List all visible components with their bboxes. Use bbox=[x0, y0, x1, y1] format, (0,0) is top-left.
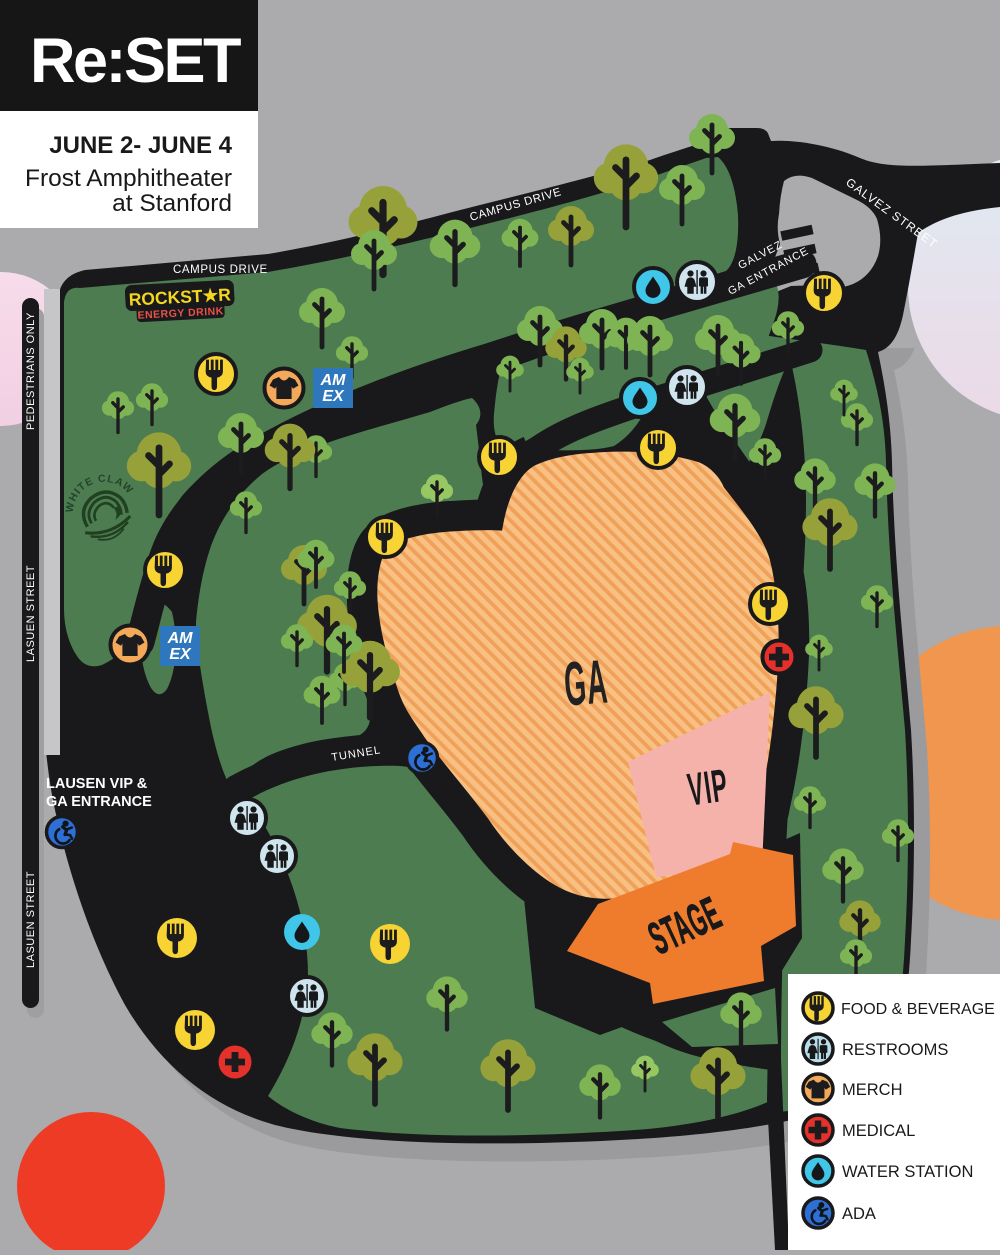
svg-text:AM: AM bbox=[320, 372, 347, 389]
svg-text:CAMPUS DRIVE: CAMPUS DRIVE bbox=[173, 264, 268, 276]
svg-text:WATER STATION: WATER STATION bbox=[842, 1163, 973, 1181]
svg-text:LAUSEN VIP &: LAUSEN VIP & bbox=[46, 776, 148, 792]
svg-text:MERCH: MERCH bbox=[842, 1081, 903, 1099]
svg-text:JUNE 2- JUNE 4: JUNE 2- JUNE 4 bbox=[49, 132, 232, 159]
svg-text:ADA: ADA bbox=[842, 1205, 876, 1223]
svg-text:Re:SET: Re:SET bbox=[30, 26, 241, 96]
svg-text:MEDICAL: MEDICAL bbox=[842, 1122, 915, 1140]
svg-text:EX: EX bbox=[169, 646, 192, 663]
svg-text:RESTROOMS: RESTROOMS bbox=[842, 1041, 948, 1059]
svg-text:EX: EX bbox=[322, 388, 345, 405]
svg-text:GA: GA bbox=[562, 647, 610, 720]
svg-text:FOOD & BEVERAGE: FOOD & BEVERAGE bbox=[841, 1001, 995, 1018]
svg-text:PEDESTRIANS ONLY: PEDESTRIANS ONLY bbox=[25, 312, 37, 430]
svg-text:VIP: VIP bbox=[685, 759, 732, 816]
svg-text:LASUEN STREET: LASUEN STREET bbox=[25, 871, 37, 968]
svg-text:AM: AM bbox=[167, 630, 194, 647]
svg-text:LASUEN STREET: LASUEN STREET bbox=[25, 565, 37, 662]
svg-text:at Stanford: at Stanford bbox=[112, 190, 232, 217]
svg-text:Frost Amphitheater: Frost Amphitheater bbox=[25, 165, 232, 192]
svg-text:GA ENTRANCE: GA ENTRANCE bbox=[46, 794, 152, 810]
